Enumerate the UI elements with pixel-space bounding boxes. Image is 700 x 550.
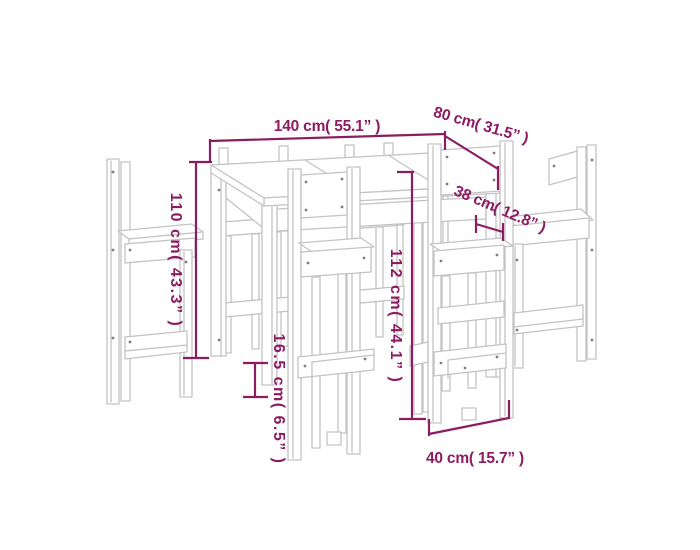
dimension-label-footrest-height: 16.5 cm( 6.5” )	[270, 334, 287, 465]
bar-stool-left	[107, 159, 203, 404]
dimension-label-table-height: 110 cm( 43.3” )	[167, 193, 184, 328]
dimension-label-table-length: 140 cm( 55.1” )	[274, 118, 380, 135]
bar-stool-right	[506, 145, 596, 368]
dimension-label-seat-width: 40 cm( 15.7” )	[426, 450, 524, 467]
dimension-label-stool-height: 112 cm( 44.1” )	[387, 249, 404, 384]
dimension-label-table-depth: 80 cm( 31.5” )	[431, 104, 530, 147]
diagram-canvas: 140 cm( 55.1” ) 80 cm( 31.5” ) 110 cm( 4…	[0, 0, 700, 550]
bar-stool-front-right	[428, 141, 513, 423]
product-dimension-diagram: 140 cm( 55.1” ) 80 cm( 31.5” ) 110 cm( 4…	[0, 0, 700, 550]
